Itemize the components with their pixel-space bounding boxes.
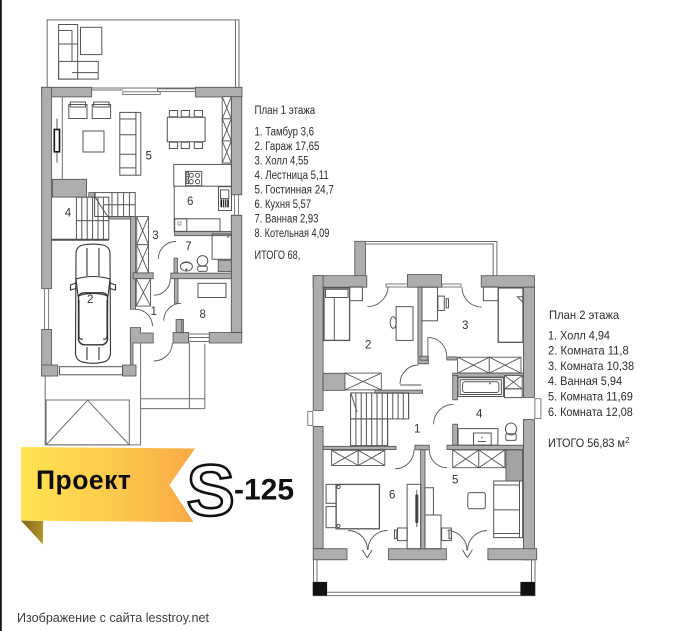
svg-text:План 1 этажа: План 1 этажа	[255, 105, 316, 117]
svg-text:2. Гараж 17,65: 2. Гараж 17,65	[255, 141, 320, 153]
svg-text:1: 1	[414, 423, 420, 435]
svg-text:4. Лестница 5,11: 4. Лестница 5,11	[255, 170, 329, 182]
svg-text:2: 2	[87, 294, 93, 306]
svg-text:1. Холл 4,94: 1. Холл 4,94	[548, 328, 610, 342]
svg-text:7. Ванная 2,93: 7. Ванная 2,93	[255, 214, 319, 226]
svg-text:6. Кухня 5,57: 6. Кухня 5,57	[255, 199, 312, 211]
svg-text:1: 1	[151, 306, 157, 318]
svg-text:6. Комната 12,08: 6. Комната 12,08	[548, 405, 633, 419]
svg-text:5. Гостинная 24,7: 5. Гостинная 24,7	[255, 185, 334, 197]
svg-text:8: 8	[200, 309, 206, 321]
svg-text:5: 5	[452, 474, 458, 486]
svg-text:7: 7	[185, 241, 191, 253]
svg-text:-125: -125	[234, 474, 294, 507]
svg-text:ИТОГО 56,83 м2: ИТОГО 56,83 м2	[548, 436, 630, 450]
svg-text:4: 4	[476, 408, 483, 420]
svg-text:8. Котельная 4,09: 8. Котельная 4,09	[255, 228, 330, 240]
svg-text:4. Ванная 5,94: 4. Ванная 5,94	[548, 374, 623, 388]
svg-text:Изображение с сайта lesstroy.n: Изображение с сайта lesstroy.net	[17, 610, 209, 625]
svg-text:3. Холл 4,55: 3. Холл 4,55	[255, 156, 309, 168]
svg-text:3: 3	[462, 320, 468, 332]
svg-text:5. Комната 11,69: 5. Комната 11,69	[548, 390, 633, 404]
svg-text:1. Тамбур 3,6: 1. Тамбур 3,6	[255, 127, 315, 139]
svg-text:3: 3	[152, 230, 158, 242]
svg-text:6: 6	[389, 489, 395, 501]
svg-text:2: 2	[365, 339, 371, 351]
svg-text:Проект: Проект	[36, 465, 131, 495]
svg-text:План 2 этажа: План 2 этажа	[549, 308, 620, 322]
svg-text:6: 6	[187, 196, 193, 208]
svg-text:4: 4	[65, 207, 72, 219]
svg-text:3. Комната 10,38: 3. Комната 10,38	[548, 359, 635, 373]
svg-text:ИТОГО 68,: ИТОГО 68,	[255, 250, 301, 262]
svg-text:5: 5	[146, 151, 152, 163]
svg-text:S: S	[187, 451, 235, 532]
svg-text:2. Комната 11,8: 2. Комната 11,8	[548, 344, 629, 358]
